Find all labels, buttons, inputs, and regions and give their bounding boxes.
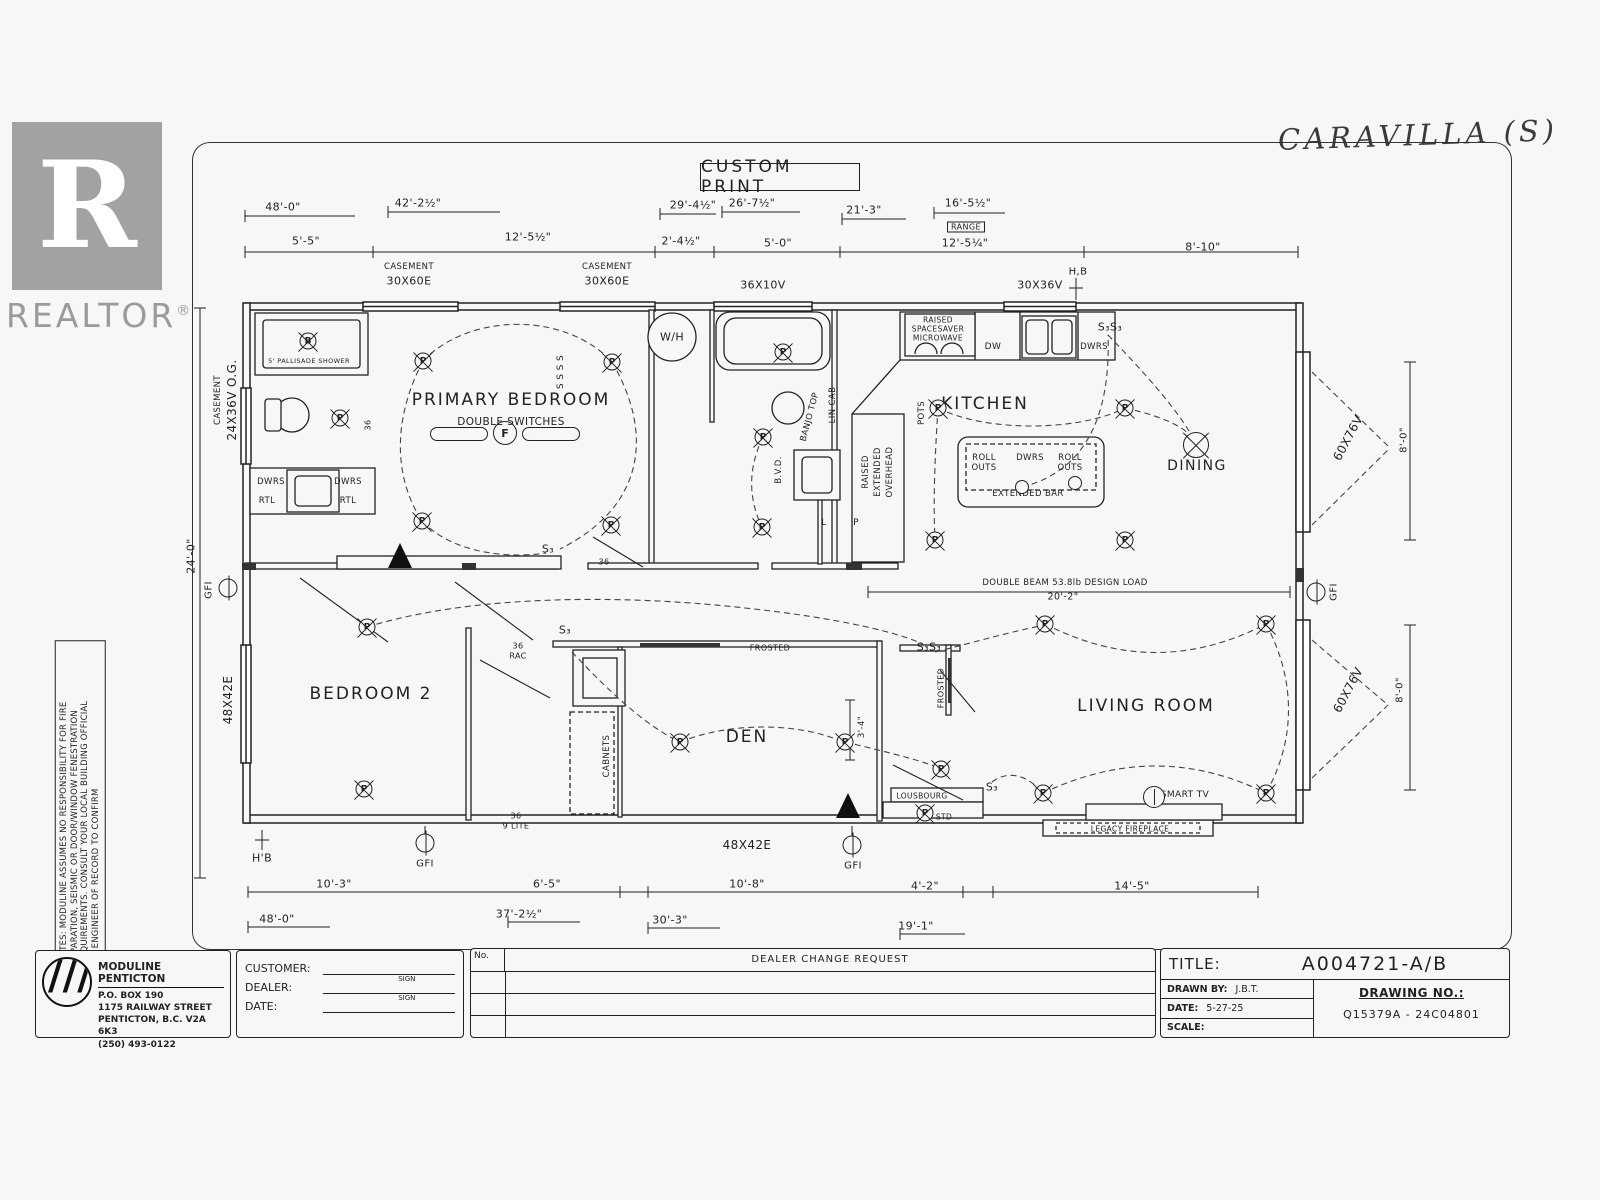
switch-s3-hall: S₃: [559, 624, 571, 637]
gfi-bottom-left-label: GFI: [416, 859, 434, 870]
light-bed2-2: P: [356, 781, 373, 798]
gfi-bottom-right-label: GFI: [844, 861, 862, 872]
dim-8-0-upper: 8'-0": [1399, 427, 1410, 453]
light-living-4: P: [1035, 785, 1052, 802]
change-request-row[interactable]: [471, 972, 1155, 994]
date-label: DATE:: [245, 1000, 323, 1013]
switch-s3s3-kitchen: S₃S₃: [1098, 321, 1122, 334]
appl-dw: DW: [985, 342, 1002, 352]
dim-12-5half: 12'-5½": [505, 231, 552, 244]
light-den-1: P: [672, 734, 689, 751]
manufacturer-block: MODULINE PENTICTON P.O. BOX 190 1175 RAI…: [35, 950, 231, 1038]
island-dwrs: DWRS: [1016, 453, 1044, 463]
dim-14-5: 14'-5": [1114, 880, 1149, 893]
light-living-3: P: [1258, 785, 1275, 802]
light-pb-4: P: [603, 517, 620, 534]
closet-l: L: [821, 518, 826, 528]
door-36-hall: 36: [599, 558, 610, 567]
title-value: A004721-A/B: [1249, 953, 1501, 975]
window-casement-1a: CASEMENT: [384, 262, 434, 272]
customer-signature-line[interactable]: SIGN: [323, 962, 455, 975]
dim-2-4half: 2'-4½": [661, 235, 700, 248]
cab-dwrs-kitchen: DWRS: [1080, 342, 1108, 352]
moduline-logo-icon: [42, 957, 92, 1007]
change-request-header: DEALER CHANGE REQUEST: [505, 949, 1155, 971]
gfi-bottom-left: [416, 834, 435, 853]
manufacturer-address3: PENTICTON, B.C. V2A 6K3: [98, 1014, 224, 1038]
date-line[interactable]: [323, 1000, 455, 1013]
mw-spacesaver: SPACESAVER: [912, 325, 964, 334]
dim-26-7half: 26'-7½": [729, 197, 776, 210]
window-48x42e-bottom: 48X42E: [723, 838, 772, 852]
change-request-table: No. DEALER CHANGE REQUEST: [470, 948, 1156, 1038]
cab-overhead: OVERHEAD: [885, 447, 895, 498]
dim-42-2half: 42'-2½": [395, 197, 442, 210]
change-request-row[interactable]: [471, 994, 1155, 1016]
cab-dwrs-right: DWRS: [334, 477, 362, 487]
closet-p: P: [853, 518, 859, 528]
light-kitchen-3: P: [927, 532, 944, 549]
light-hall-1: P: [755, 429, 772, 446]
light-entry: P: [933, 761, 950, 778]
dim-20-2: 20'-2": [1048, 592, 1079, 603]
beam-note: DOUBLE BEAM 53.8lb DESIGN LOAD: [982, 578, 1147, 588]
light-bath1: P: [332, 410, 349, 427]
fixture-smart-tv: SMART TV: [1161, 790, 1209, 800]
window-30x60e-2: 30X60E: [585, 275, 630, 288]
dim-10-8: 10'-8": [729, 878, 764, 891]
cab-pots: POTS: [917, 401, 927, 425]
gfi-left-label: GFI: [204, 581, 215, 599]
date2-label: DATE:: [1167, 1003, 1198, 1014]
island-roll-1: ROLL: [972, 453, 996, 463]
dealer-signature-line[interactable]: SIGN: [323, 981, 455, 994]
title-info-block: TITLE: A004721-A/B DRAWN BY:J.B.T. DATE:…: [1160, 948, 1510, 1038]
room-kitchen: KITCHEN: [941, 394, 1029, 414]
door-36-bedroom: 36: [364, 420, 373, 431]
scale-label: SCALE:: [1167, 1022, 1205, 1033]
date-value: 5-27-25: [1206, 1003, 1243, 1014]
mw-microwave: MICROWAVE: [913, 334, 963, 343]
dim-24-0-left: 24'-0": [185, 538, 198, 573]
fixture-std: STD: [936, 813, 952, 822]
cab-lin-cab: LIN CAB: [828, 387, 838, 424]
row-no-cell: [471, 994, 506, 1015]
cab-rtl-right: RTL: [340, 496, 356, 506]
fixture-bvd: B.V.D.: [774, 456, 784, 484]
dim-48-0-top: 48'-0": [265, 201, 300, 214]
hose-bib-bottom: H'B: [252, 852, 272, 865]
manufacturer-address1: P.O. BOX 190: [98, 990, 224, 1002]
door-36-rac-b: RAC: [509, 652, 526, 661]
dim-8-10: 8'-10": [1185, 241, 1220, 254]
light-living-2: P: [1258, 616, 1275, 633]
dim-5-0: 5'-0": [764, 237, 792, 250]
light-pb-2: P: [604, 354, 621, 371]
dealer-label: DEALER:: [245, 981, 323, 994]
light-living-1: P: [1037, 616, 1054, 633]
window-36x10v: 36X10V: [740, 279, 785, 292]
light-kitchen-1: P: [930, 400, 947, 417]
light-kitchen-4: P: [1117, 532, 1134, 549]
window-24x36v-og: 24X36V O.G.: [225, 359, 239, 440]
cab-cabinets: CABNETS: [602, 735, 612, 778]
light-bed2-1: P: [359, 619, 376, 636]
light-hall-2: P: [754, 519, 771, 536]
window-30x60e-1: 30X60E: [387, 275, 432, 288]
hose-bib-top: H,B: [1069, 267, 1088, 278]
light-den-2: P: [837, 734, 854, 751]
gfi-left: [219, 579, 238, 598]
cab-banjo-top: BANJO TOP: [799, 391, 822, 442]
smart-tv-symbol: [1143, 786, 1165, 808]
light-rollout-1: [1015, 480, 1029, 494]
dim-37-2half: 37'-2½": [496, 908, 543, 921]
manufacturer-address2: 1175 RAILWAY STREET: [98, 1002, 224, 1014]
mw-raised: RAISED: [923, 316, 953, 325]
switch-s3-bedroom: S₃: [542, 543, 554, 556]
island-outs-2: OUTS: [1057, 463, 1082, 473]
room-dining: DINING: [1167, 458, 1227, 474]
light-dining-chandelier: [1183, 432, 1209, 458]
light-pb-1: P: [415, 353, 432, 370]
dim-4-2: 4'-2": [911, 880, 939, 893]
room-primary-bedroom: PRIMARY BEDROOM: [412, 390, 611, 410]
fixture-legacy-fireplace: LEGACY FIREPLACE: [1091, 825, 1170, 834]
dim-48-0-bottom: 48'-0": [259, 913, 294, 926]
change-request-row[interactable]: [471, 1016, 1155, 1037]
gfi-right-label: GFI: [1329, 583, 1340, 601]
room-den: DEN: [726, 727, 769, 747]
island-outs-1: OUTS: [971, 463, 996, 473]
window-60x76v-lower: 60X76V: [1330, 665, 1366, 715]
light-shower-b: B: [300, 333, 317, 350]
room-bedroom-2: BEDROOM 2: [310, 684, 433, 704]
dim-12-5quarter: 12'-5¼": [942, 237, 989, 250]
drawn-by-value: J.B.T.: [1235, 984, 1258, 995]
cab-rtl-left: RTL: [259, 496, 275, 506]
cab-dwrs-left: DWRS: [257, 477, 285, 487]
light-rollout-2: [1068, 476, 1082, 490]
cab-raised: RAISED: [861, 455, 871, 489]
window-30x36v: 30X36V: [1017, 279, 1062, 292]
window-frosted-living: FROSTED: [937, 668, 946, 708]
dim-3-4: 3'-4": [857, 716, 867, 738]
drawing-no-label: DRAWING NO.:: [1314, 986, 1509, 1000]
window-60x76v-upper: 60X76V: [1330, 413, 1366, 463]
window-casement-left-a: CASEMENT: [213, 375, 223, 425]
window-frosted-den: FROSTED: [750, 644, 790, 653]
door-36-rac-a: 36: [513, 642, 524, 651]
dim-19-1: 19'-1": [898, 920, 933, 933]
switch-ssss: S S S S: [556, 355, 566, 389]
switch-s3s3-living: S₃S₃: [917, 641, 941, 654]
light-pb-3: P: [414, 513, 431, 530]
dim-21-3: 21'-3": [846, 204, 881, 217]
title-label: TITLE:: [1169, 955, 1249, 973]
light-kitchen-2: P: [1117, 400, 1134, 417]
cab-extended: EXTENDED: [873, 447, 883, 497]
fixture-lousbourg: LOUSBOURG: [896, 792, 947, 801]
dim-5-5: 5'-5": [292, 235, 320, 248]
window-48x42e-left: 48X42E: [221, 676, 235, 725]
note-double-switches: DOUBLE SWITCHES: [457, 416, 565, 428]
change-no-header: No.: [471, 949, 505, 971]
fixture-pallisade-shower: 5' PALLISADE SHOWER: [268, 357, 350, 365]
row-no-cell: [471, 1016, 506, 1037]
dim-16-5half: 16'-5½": [945, 197, 992, 210]
light-std: P: [917, 805, 934, 822]
signature-block: CUSTOMER: SIGN DEALER: SIGN DATE:: [236, 950, 464, 1038]
row-no-cell: [471, 972, 506, 993]
switch-s3-living: S₃: [986, 781, 998, 794]
dim-8-0-lower: 8'-0": [1395, 677, 1406, 703]
dim-6-5: 6'-5": [533, 878, 561, 891]
drawing-sheet: R REALTOR® CARAVILLA (S) CUSTOM PRINT NO…: [0, 0, 1600, 1200]
gfi-right: [1307, 583, 1326, 602]
door-36-9lite-a: 36: [511, 812, 522, 821]
room-living-room: LIVING ROOM: [1077, 696, 1215, 716]
customer-label: CUSTOMER:: [245, 962, 323, 975]
dim-10-3: 10'-3": [316, 878, 351, 891]
gfi-bottom-right: [843, 836, 862, 855]
drawn-by-label: DRAWN BY:: [1167, 984, 1227, 995]
drawing-no-value: Q15379A - 24C04801: [1314, 1008, 1509, 1021]
manufacturer-phone: (250) 493-0122: [98, 1039, 224, 1051]
light-bath2-tub: P: [775, 344, 792, 361]
dim-30-3: 30'-3": [652, 914, 687, 927]
island-roll-2: ROLL: [1058, 453, 1082, 463]
range-label: RANGE: [947, 222, 985, 233]
window-casement-2a: CASEMENT: [582, 262, 632, 272]
door-36-9lite-b: 9 LITE: [503, 822, 530, 831]
fixture-water-heater: W/H: [660, 331, 684, 344]
manufacturer-name: MODULINE PENTICTON: [98, 961, 224, 988]
dim-29-4half: 29'-4½": [670, 199, 717, 212]
